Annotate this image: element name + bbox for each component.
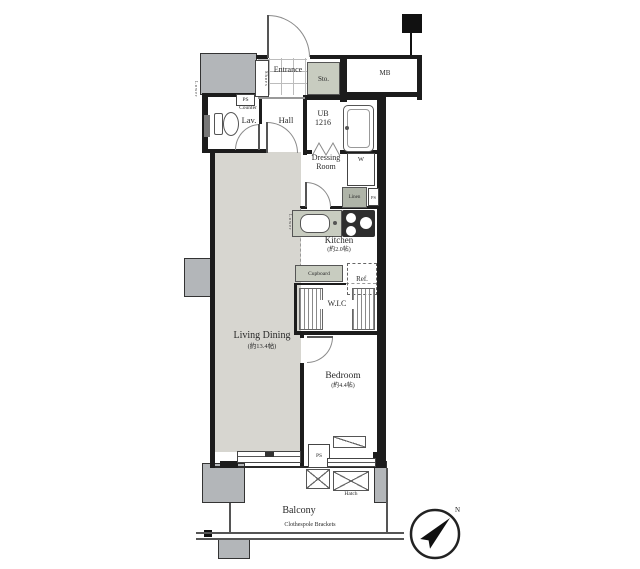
kitchen-label: Kitchen — [312, 236, 366, 246]
wall-mb-top — [346, 55, 422, 59]
compass-needle — [420, 518, 450, 549]
pillar-mid-left — [184, 258, 212, 297]
washer-space: W — [347, 153, 375, 186]
wall-wic-bottom — [294, 331, 378, 335]
pillar-top-left — [200, 53, 257, 95]
bedroom-door-leaf — [307, 336, 333, 338]
evacuation-hatch — [333, 471, 369, 491]
lower-ceiling-left: Lower — [190, 74, 198, 104]
clothespole-label: Clothespole Brackets — [250, 522, 370, 529]
entrance-label: Entrance — [262, 66, 314, 75]
hall-label: Hall — [270, 116, 302, 125]
unit-bath-label: UB 1216 — [306, 110, 340, 128]
bathtub-inner — [347, 109, 370, 148]
counter-label: Counter — [230, 105, 266, 111]
bathtub-drain — [345, 126, 349, 130]
wall-left-main — [210, 152, 215, 468]
balcony-equipment-box — [306, 469, 330, 489]
dressing-door-arc — [306, 182, 331, 207]
bedroom-window-mullion — [328, 462, 375, 463]
lavatory-label: Lav. — [232, 116, 266, 125]
living-door-leaf — [266, 122, 268, 153]
living-dining-size: (約13.4帖) — [222, 343, 302, 350]
bedroom-size: (約4.4帖) — [314, 383, 372, 390]
balcony-rail-inner — [196, 538, 404, 540]
entrance-step-line — [258, 97, 305, 99]
wall-right-main — [377, 97, 386, 468]
wall-notch-stem — [410, 33, 412, 57]
lavatory-utility — [204, 115, 210, 137]
lavatory-door-arc — [235, 124, 260, 150]
floor-plan: Shoes Sto. MB Entrance Lower PS Counter … — [0, 0, 640, 569]
balcony-side-left — [229, 503, 231, 533]
dressing-line2: Room — [303, 163, 349, 172]
lower-ceiling-kitchen: Lower — [284, 206, 292, 238]
balcony-label: Balcony — [264, 505, 334, 516]
balcony-side-right — [386, 468, 388, 533]
linen-storage: Linen — [342, 187, 367, 208]
bedroom-label: Bedroom — [314, 371, 372, 381]
kitchen-size: (約2.0帖) — [312, 247, 366, 254]
entrance-door-leaf — [267, 15, 269, 58]
unit-bath-size: 1216 — [306, 119, 340, 128]
compass-north-label: N — [455, 506, 460, 514]
balcony-rail-outer — [196, 532, 404, 534]
wall-wic-left — [294, 283, 297, 334]
wall-notch-top-right — [402, 14, 422, 33]
wic-label: W.I.C — [317, 300, 357, 309]
north-compass: N — [406, 500, 464, 562]
wic-shelf-left — [299, 288, 323, 330]
entrance-door-arc — [268, 15, 310, 57]
hatch-label: Hatch — [336, 491, 366, 497]
wic-shelf-right — [352, 288, 375, 330]
bedroom-closet-unit — [333, 436, 366, 448]
toilet-tank — [214, 113, 223, 135]
stove-burner-1 — [346, 213, 356, 223]
kitchen-sink — [300, 214, 330, 233]
bedroom-door-arc — [307, 337, 333, 363]
living-window-handle — [265, 452, 274, 457]
lavatory-door-leaf — [258, 124, 260, 150]
wall-entrance-ub-top — [303, 95, 378, 100]
living-dining-floor — [215, 152, 301, 452]
living-door-arc — [267, 122, 298, 153]
meter-box-label: MB — [368, 70, 402, 78]
pillar-bottom-left — [202, 463, 245, 503]
wall-stub-window-left — [220, 461, 238, 468]
cupboard: Cupboard — [295, 265, 343, 282]
dressing-door-leaf — [305, 182, 307, 207]
dressing-room-label: Dressing Room — [303, 154, 349, 172]
balcony-drain-box — [218, 539, 250, 559]
pipe-space-linen: PS — [368, 188, 379, 206]
stove-burner-3 — [360, 217, 372, 229]
wall-wic-top — [294, 283, 346, 285]
kitchen-faucet — [333, 221, 337, 225]
living-dining-label: Living Dining — [222, 330, 302, 341]
